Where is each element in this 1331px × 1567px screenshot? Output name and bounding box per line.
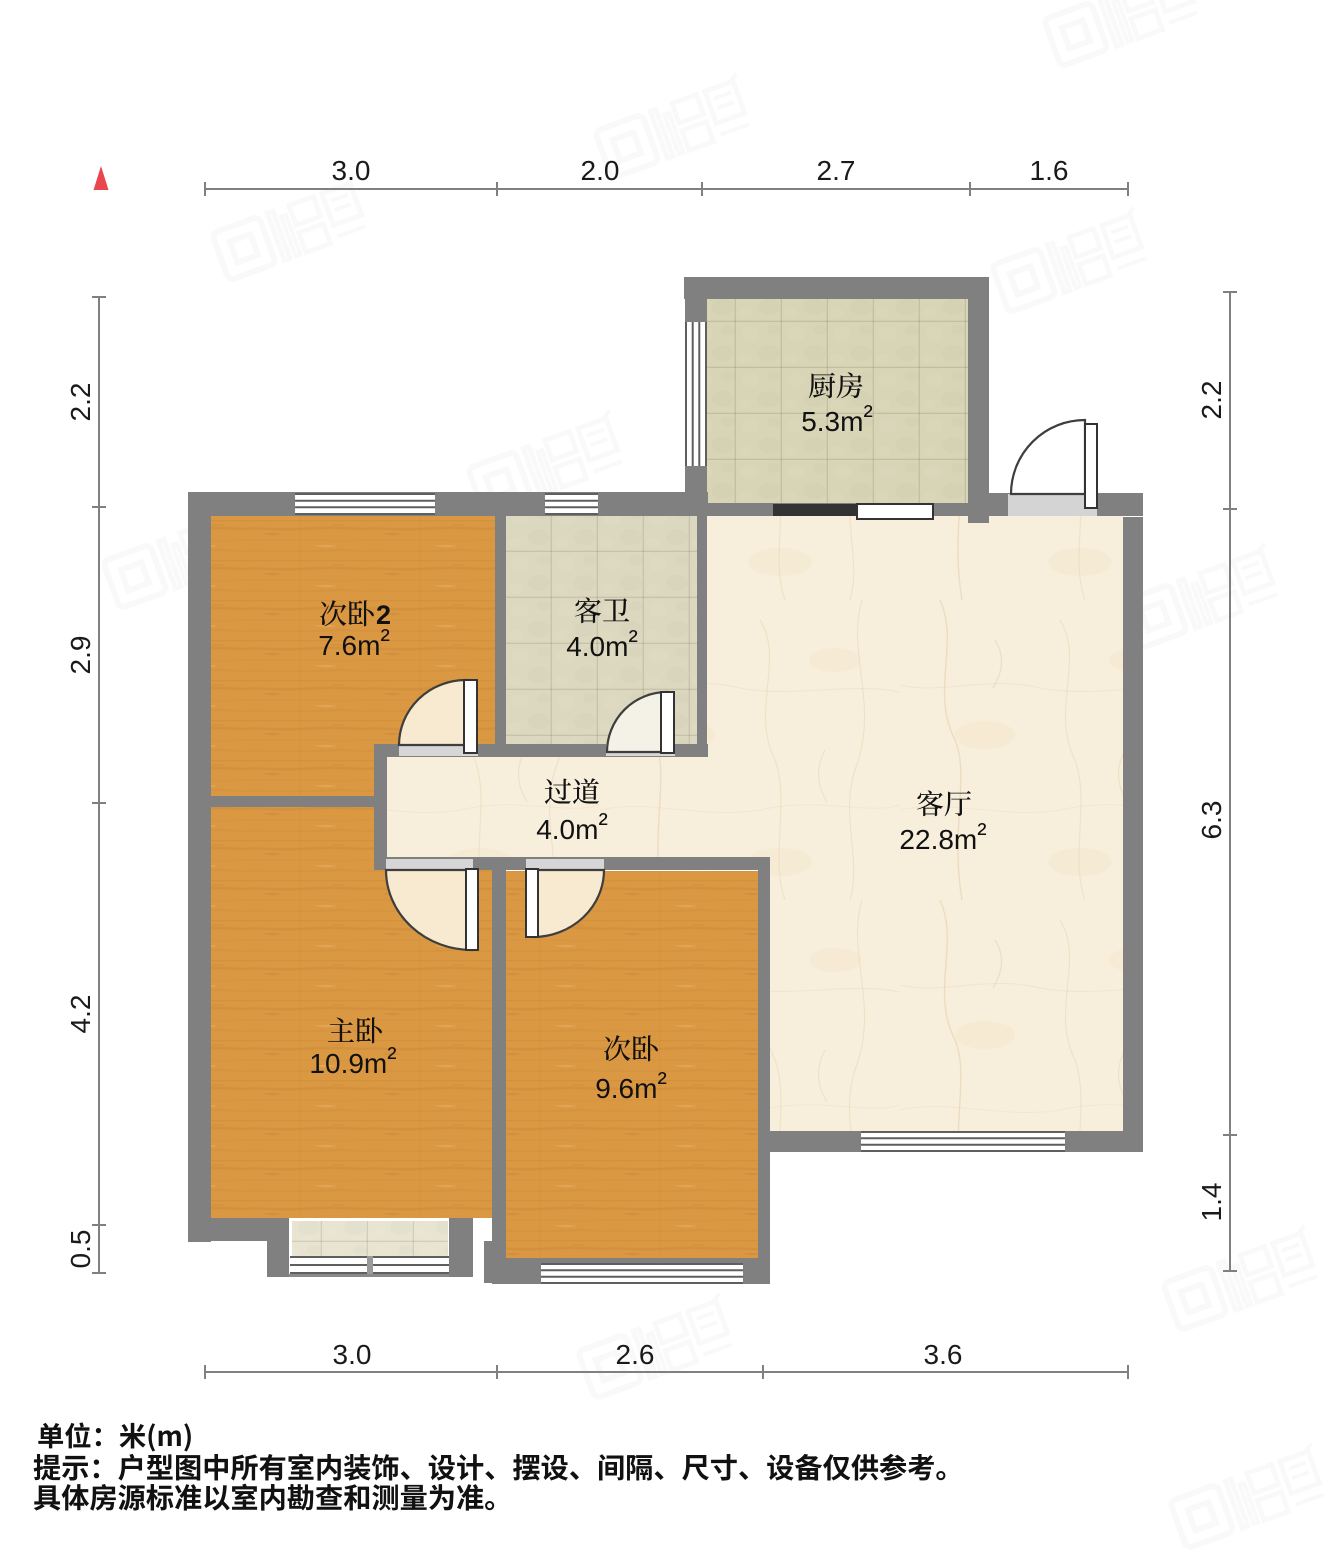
svg-text:22.8m²: 22.8m²: [899, 818, 986, 855]
svg-text:2.2: 2.2: [65, 383, 96, 422]
svg-text:9.6m²: 9.6m²: [595, 1067, 667, 1104]
svg-text:1.4: 1.4: [1196, 1183, 1227, 1222]
svg-text:3.0: 3.0: [333, 1339, 372, 1370]
svg-text:2.7: 2.7: [817, 155, 856, 186]
svg-text:7.6m²: 7.6m²: [318, 624, 390, 661]
svg-text:3.0: 3.0: [332, 155, 371, 186]
svg-text:10.9m²: 10.9m²: [309, 1042, 396, 1079]
svg-text:2.0: 2.0: [581, 155, 620, 186]
svg-text:6.3: 6.3: [1196, 801, 1227, 840]
svg-text:4.2: 4.2: [65, 995, 96, 1034]
svg-text:0.5: 0.5: [65, 1230, 96, 1269]
svg-text:4.0m²: 4.0m²: [536, 808, 608, 845]
svg-text:2.2: 2.2: [1196, 381, 1227, 420]
svg-text:4.0m²: 4.0m²: [566, 625, 638, 662]
svg-text:2.6: 2.6: [616, 1339, 655, 1370]
svg-text:1.6: 1.6: [1030, 155, 1069, 186]
svg-text:5.3m²: 5.3m²: [801, 400, 873, 437]
svg-text:3.6: 3.6: [924, 1339, 963, 1370]
svg-text:2.9: 2.9: [65, 636, 96, 675]
